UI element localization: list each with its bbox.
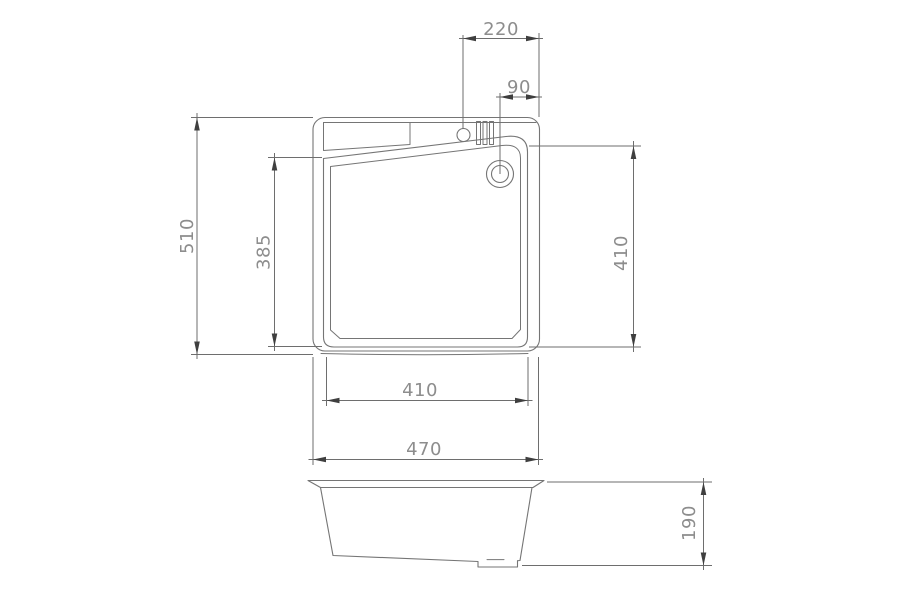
dim-label-470: 470 [406,439,442,460]
dimension-410-bottom: 410 [322,357,533,406]
slot-3 [490,122,494,145]
arrow-up [701,482,707,495]
arrow-right [526,457,539,463]
drawing-canvas: 220 90 510 385 410 [0,0,900,600]
basin-outer-rim [324,136,528,347]
overflow-slots [477,122,494,145]
side-body [321,488,533,568]
arrow-down [272,334,278,347]
dimension-385: 385 [254,153,323,351]
slot-1 [477,122,481,145]
plan-view [313,118,540,355]
sink-technical-drawing: 220 90 510 385 410 [0,0,900,600]
faucet-hole [457,129,470,142]
arrow-up [631,146,637,159]
arrow-left [463,36,476,42]
arrow-up [194,118,200,131]
dimension-220: 220 [459,19,543,129]
side-view [308,481,544,568]
slot-2 [483,122,487,145]
dim-label-90: 90 [507,77,531,98]
dimension-90: 90 [496,77,542,174]
dimension-190: 190 [522,478,712,570]
arrow-left [313,457,326,463]
sink-outer-edge [313,118,540,352]
dimension-410-right: 410 [529,141,641,352]
arrow-down [194,342,200,355]
side-flange [308,481,544,488]
arrow-right [515,398,528,404]
sink-bottom-lip [321,354,528,355]
dim-label-220: 220 [483,19,519,40]
dim-label-410-bottom: 410 [402,380,438,401]
dim-label-385: 385 [254,234,275,270]
arrow-left [327,398,340,404]
arrow-right [526,36,539,42]
dimension-510: 510 [177,113,313,359]
arrow-down [701,553,707,566]
dim-label-410-right: 410 [611,235,632,271]
arrow-up [272,158,278,171]
dimension-470: 470 [309,357,544,465]
arrow-down [631,334,637,347]
dim-label-190: 190 [679,505,700,541]
deck-ledge-rectangle [324,123,411,151]
dim-label-510: 510 [177,218,198,254]
